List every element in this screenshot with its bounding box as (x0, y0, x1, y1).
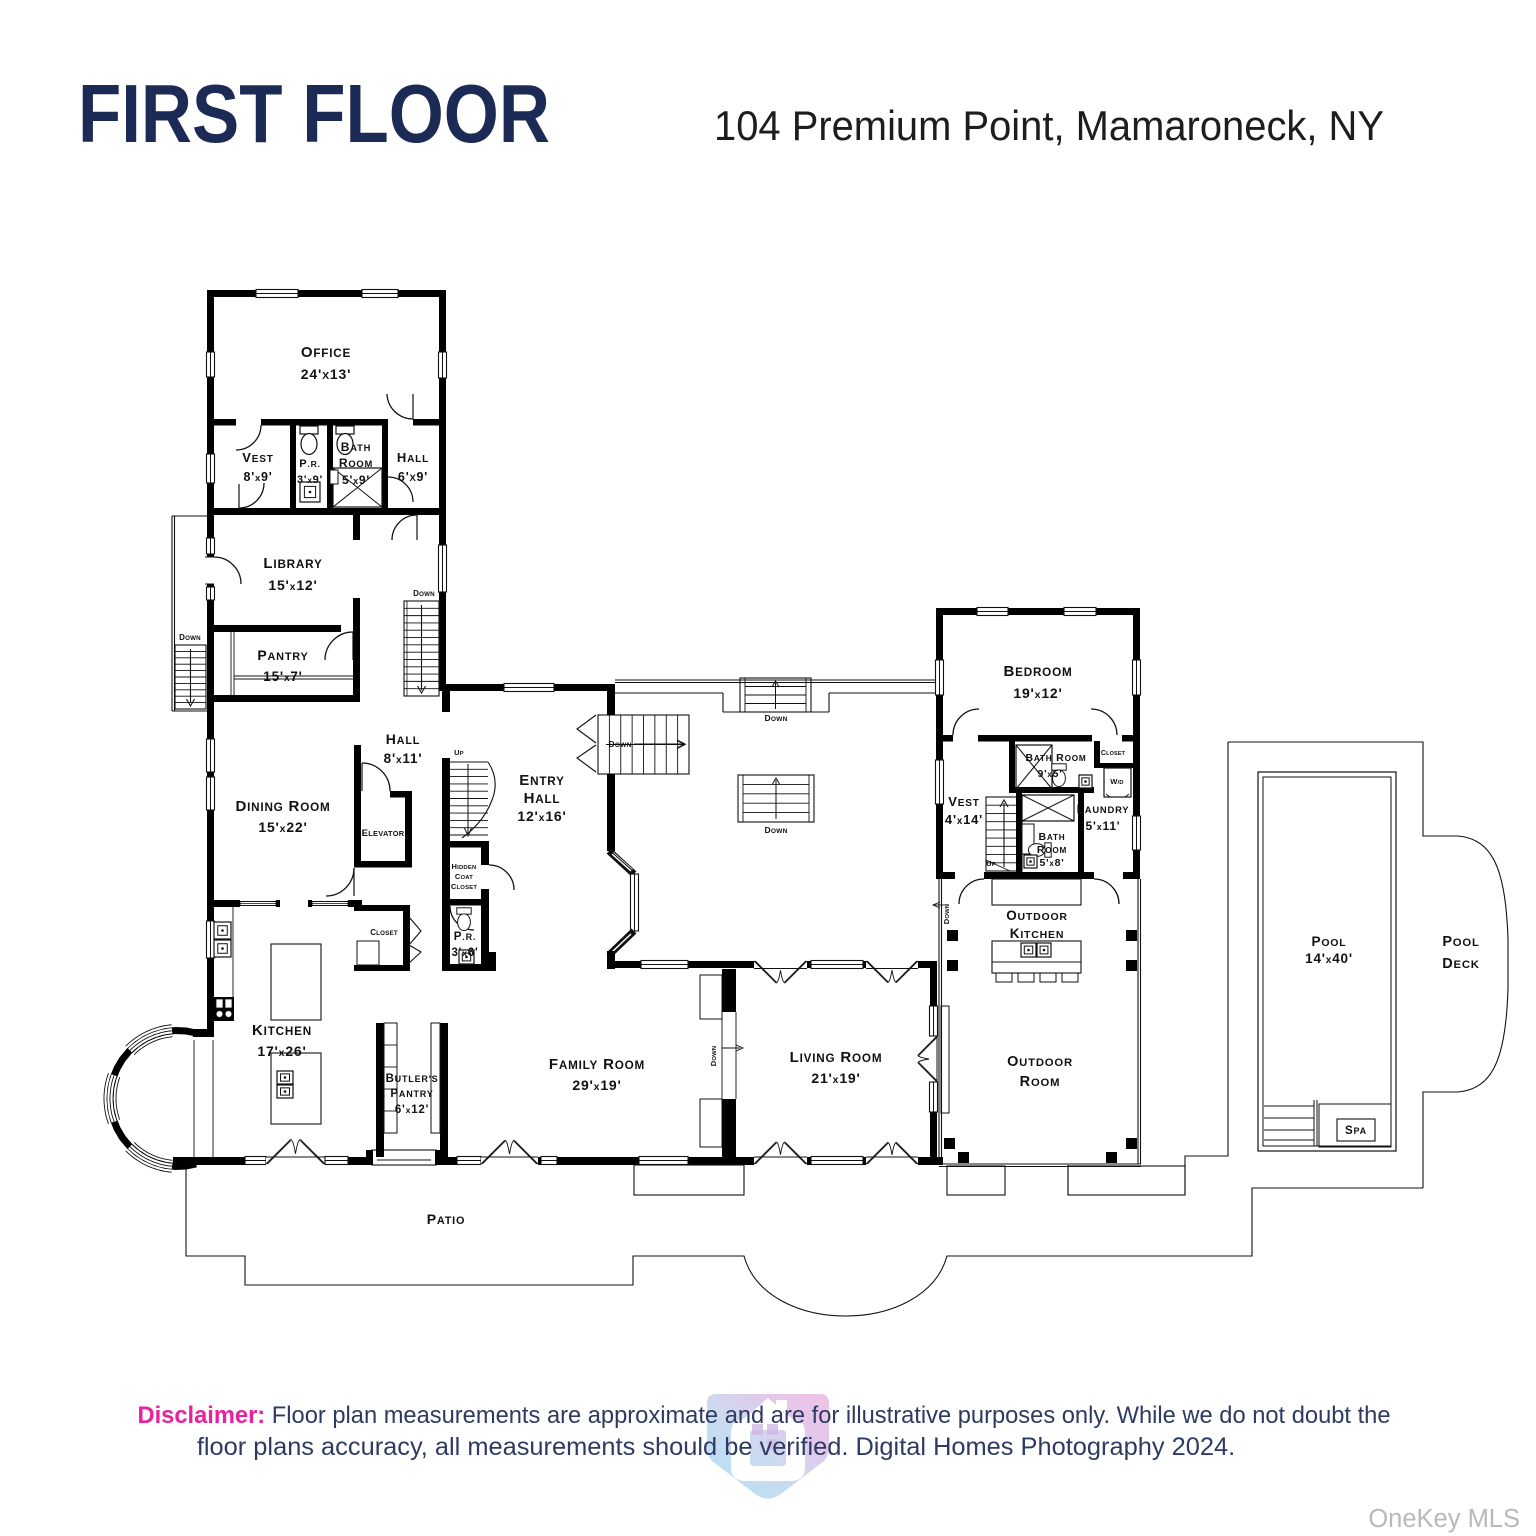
svg-text:floor plans accuracy, all meas: floor plans accuracy, all measurements s… (197, 1433, 1235, 1461)
svg-text:SPA: SPA (1345, 1125, 1367, 1137)
svg-text:8'x9': 8'x9' (243, 470, 272, 484)
svg-text:ROOM: ROOM (1020, 1074, 1061, 1090)
svg-text:PANTRY: PANTRY (390, 1088, 433, 1100)
svg-text:POOL: POOL (1312, 934, 1347, 949)
svg-text:BATH: BATH (1038, 831, 1065, 843)
svg-text:LIBRARY: LIBRARY (263, 555, 322, 572)
svg-text:CLOSET: CLOSET (1101, 750, 1126, 757)
svg-text:HALL: HALL (524, 790, 561, 807)
svg-text:ENTRY: ENTRY (519, 772, 564, 789)
svg-text:Disclaimer: Floor plan measure: Disclaimer: Floor plan measurements are … (137, 1403, 1390, 1429)
svg-text:9'x5': 9'x5' (1037, 768, 1062, 780)
svg-text:OUTDOOR: OUTDOOR (1007, 1054, 1073, 1070)
svg-text:KITCHEN: KITCHEN (1010, 926, 1064, 941)
svg-text:DOWN: DOWN (413, 589, 435, 598)
svg-text:CLOSET: CLOSET (370, 928, 398, 937)
svg-text:3'x6': 3'x6' (451, 947, 478, 959)
svg-text:DOWN: DOWN (179, 633, 201, 642)
svg-text:POOL: POOL (1442, 934, 1479, 950)
svg-text:5'x8': 5'x8' (1039, 857, 1064, 869)
svg-text:BUTLER'S: BUTLER'S (386, 1073, 439, 1085)
svg-text:LIVING ROOM: LIVING ROOM (790, 1049, 883, 1066)
svg-text:5'x11': 5'x11' (1086, 819, 1121, 833)
svg-text:3'x9': 3'x9' (297, 474, 323, 486)
svg-text:6'x12': 6'x12' (395, 1104, 429, 1116)
svg-text:LAUNDRY: LAUNDRY (1077, 802, 1130, 816)
svg-text:P.R.: P.R. (454, 931, 476, 943)
svg-text:6'X9': 6'X9' (398, 470, 428, 484)
svg-text:OFFICE: OFFICE (301, 344, 351, 361)
svg-text:OneKey MLS: OneKey MLS (1368, 1505, 1520, 1533)
svg-text:OUTDOOR: OUTDOOR (1006, 908, 1068, 923)
svg-text:BATH: BATH (341, 440, 371, 454)
svg-text:BEDROOM: BEDROOM (1003, 663, 1072, 680)
svg-text:FIRST FLOOR: FIRST FLOOR (78, 67, 550, 160)
svg-text:4'x14': 4'x14' (945, 812, 983, 827)
svg-text:P.R.: P.R. (299, 458, 321, 470)
svg-text:8'x11': 8'x11' (384, 751, 423, 766)
svg-text:DECK: DECK (1442, 956, 1480, 972)
svg-text:5'x9': 5'x9' (342, 473, 370, 487)
svg-text:ELEVATOR: ELEVATOR (362, 828, 405, 839)
svg-text:104 Premium Point, Mamaroneck,: 104 Premium Point, Mamaroneck, NY (714, 102, 1384, 149)
svg-text:BATH ROOM: BATH ROOM (1025, 752, 1086, 764)
svg-text:FAMILY ROOM: FAMILY ROOM (549, 1056, 645, 1073)
svg-text:DINING ROOM: DINING ROOM (235, 798, 330, 815)
svg-text:KITCHEN: KITCHEN (252, 1022, 312, 1039)
svg-text:ROOM: ROOM (1037, 844, 1067, 856)
svg-text:ROOM: ROOM (339, 456, 373, 470)
svg-text:15'x7': 15'x7' (263, 669, 302, 684)
